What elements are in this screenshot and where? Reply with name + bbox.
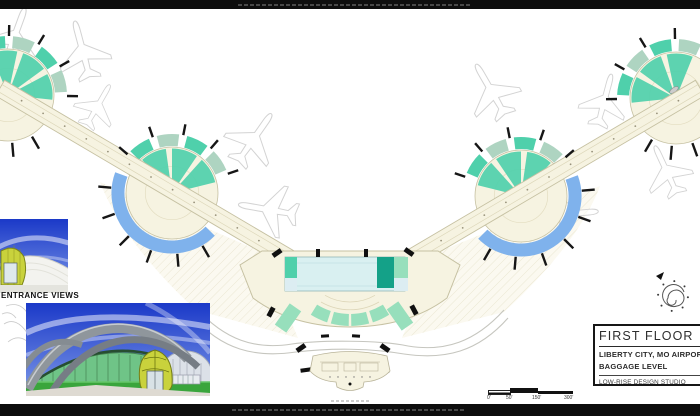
studio-name: LOW-RISE DESIGN STUDIO bbox=[599, 379, 700, 386]
title-block: FIRST FLOOR LIBERTY CITY, MO AIRPORT BAG… bbox=[593, 324, 700, 386]
gate-lounge-segment bbox=[514, 137, 537, 151]
watermark-strip bbox=[238, 4, 470, 6]
entrance-rendering-main bbox=[26, 303, 210, 396]
entry-mark bbox=[321, 334, 329, 338]
scale-tick-label: 0' bbox=[487, 395, 491, 401]
level-name: BAGGAGE LEVEL bbox=[599, 362, 700, 371]
entry-mark bbox=[352, 334, 360, 338]
watermark-strip bbox=[232, 409, 464, 411]
airplane-icon bbox=[216, 99, 293, 178]
scale-bar: 0' 50' 150' 300' bbox=[488, 386, 574, 401]
project-name: LIBERTY CITY, MO AIRPORT bbox=[599, 350, 700, 359]
entry-mark bbox=[316, 249, 320, 257]
scale-segment bbox=[510, 388, 538, 393]
scale-tick-label: 150' bbox=[532, 395, 541, 401]
gate-lounge-segment bbox=[157, 134, 180, 148]
top-border-bar bbox=[0, 0, 700, 9]
bottom-border-bar bbox=[0, 404, 700, 416]
airplane-icon bbox=[634, 136, 699, 205]
entry-mark bbox=[364, 249, 368, 257]
scale-tick-label: 50' bbox=[506, 395, 513, 401]
baggage-building bbox=[310, 352, 390, 402]
core-block bbox=[377, 257, 394, 288]
scale-tick-label: 300' bbox=[564, 395, 573, 401]
entrance-rendering-top bbox=[0, 219, 68, 293]
entrance-views-label: ENTRANCE VIEWS bbox=[1, 291, 79, 300]
scale-segment bbox=[538, 391, 573, 394]
north-arrow-icon bbox=[656, 272, 689, 312]
sheet-title: FIRST FLOOR bbox=[599, 328, 700, 347]
plan-sheet: ENTRANCE VIEWS bbox=[0, 0, 700, 416]
concourse-piers bbox=[0, 80, 700, 273]
airplane-sketches bbox=[0, 0, 699, 241]
airplane-icon bbox=[453, 51, 528, 129]
